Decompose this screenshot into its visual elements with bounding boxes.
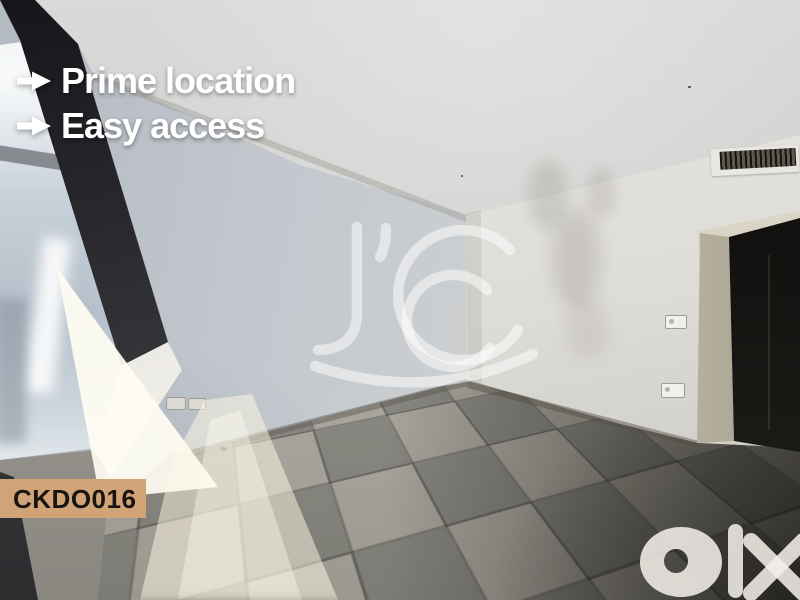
listing-photo: CKDO016 Prime location Easy access [0,0,800,600]
arrow-right-icon [16,70,52,92]
feature-label: Prime location [61,60,295,102]
feature-overlay: Prime location Easy access [16,60,295,150]
reference-code-badge: CKDO016 [0,479,146,518]
arrow-right-icon [16,115,52,137]
reference-code: CKDO016 [13,484,136,514]
feature-row: Prime location [16,60,295,101]
feature-row: Easy access [16,105,295,146]
feature-label: Easy access [61,105,264,147]
